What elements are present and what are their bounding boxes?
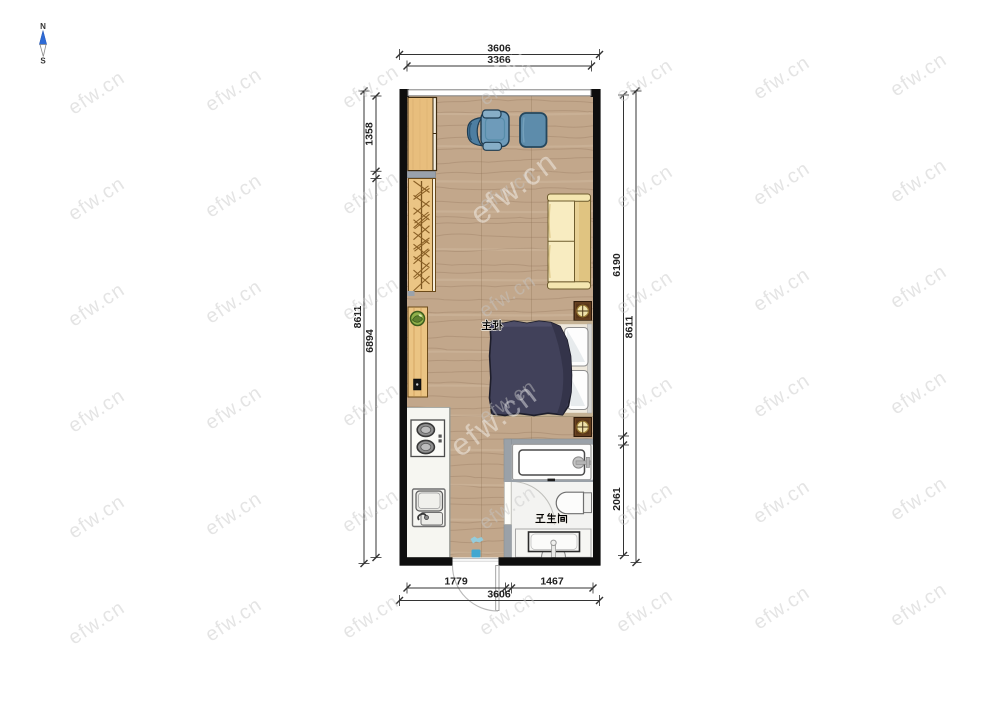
svg-text:3606: 3606 <box>487 589 511 601</box>
svg-text:S: S <box>40 57 46 66</box>
svg-text:1467: 1467 <box>540 576 564 588</box>
svg-text:1358: 1358 <box>364 122 376 146</box>
svg-text:1779: 1779 <box>444 576 468 588</box>
svg-text:N: N <box>40 22 46 31</box>
svg-text:8611: 8611 <box>624 315 636 338</box>
svg-text:6894: 6894 <box>364 329 376 353</box>
svg-text:6190: 6190 <box>611 253 623 277</box>
